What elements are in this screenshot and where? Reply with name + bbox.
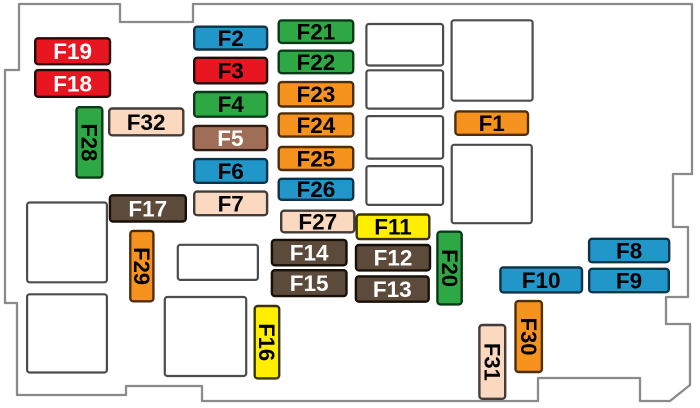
svg-text:F1: F1 (479, 111, 505, 136)
svg-text:F13: F13 (373, 277, 412, 302)
svg-text:F8: F8 (616, 238, 642, 263)
svg-text:F20: F20 (437, 249, 462, 287)
svg-text:F2: F2 (218, 26, 244, 51)
svg-text:F25: F25 (297, 146, 336, 171)
svg-text:F6: F6 (218, 159, 244, 184)
svg-text:F26: F26 (297, 177, 336, 202)
svg-text:F17: F17 (128, 196, 167, 221)
svg-text:F14: F14 (290, 241, 329, 266)
svg-text:F10: F10 (522, 268, 561, 293)
svg-text:F30: F30 (516, 318, 541, 356)
svg-text:F29: F29 (129, 247, 154, 285)
svg-text:F12: F12 (374, 246, 413, 271)
svg-text:F7: F7 (218, 191, 244, 216)
svg-text:F19: F19 (53, 39, 92, 64)
svg-text:F28: F28 (77, 123, 102, 161)
svg-text:F31: F31 (480, 343, 505, 381)
svg-text:F32: F32 (127, 110, 166, 135)
svg-text:F18: F18 (53, 71, 92, 96)
svg-text:F21: F21 (297, 20, 336, 45)
svg-text:F24: F24 (297, 113, 336, 138)
svg-text:F16: F16 (254, 323, 279, 361)
svg-text:F5: F5 (217, 126, 243, 151)
svg-text:F15: F15 (290, 271, 329, 296)
svg-text:F22: F22 (297, 50, 336, 75)
svg-text:F4: F4 (218, 92, 245, 117)
svg-text:F3: F3 (218, 58, 244, 83)
svg-text:F27: F27 (298, 209, 337, 234)
svg-text:F11: F11 (374, 215, 412, 240)
svg-text:F9: F9 (616, 268, 642, 293)
svg-text:F23: F23 (297, 82, 336, 107)
